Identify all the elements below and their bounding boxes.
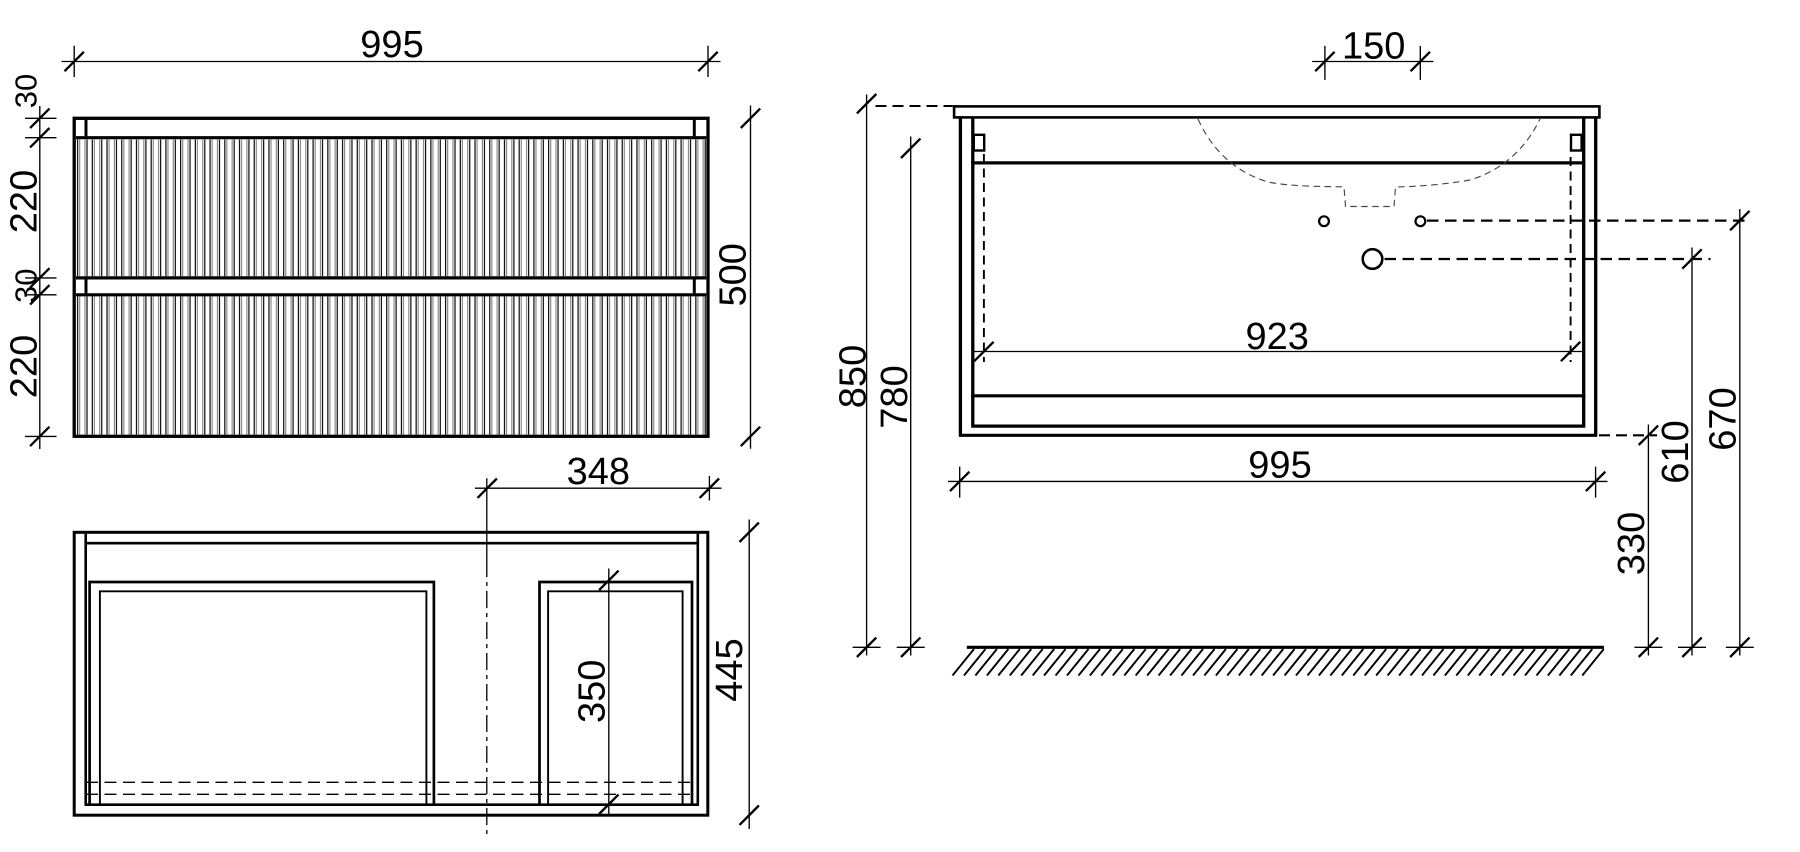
svg-text:995: 995 bbox=[1248, 445, 1311, 487]
svg-text:923: 923 bbox=[1245, 316, 1308, 358]
svg-text:500: 500 bbox=[713, 243, 755, 306]
svg-text:220: 220 bbox=[4, 170, 46, 233]
svg-text:995: 995 bbox=[360, 24, 423, 66]
svg-text:30: 30 bbox=[9, 269, 44, 303]
svg-text:350: 350 bbox=[572, 660, 614, 723]
svg-text:445: 445 bbox=[709, 638, 751, 701]
svg-text:348: 348 bbox=[567, 451, 630, 493]
svg-text:610: 610 bbox=[1655, 420, 1697, 483]
svg-text:850: 850 bbox=[833, 345, 875, 408]
svg-text:220: 220 bbox=[4, 335, 46, 398]
svg-text:330: 330 bbox=[1611, 512, 1653, 575]
svg-text:670: 670 bbox=[1703, 387, 1745, 450]
svg-text:150: 150 bbox=[1342, 26, 1405, 68]
svg-text:30: 30 bbox=[9, 74, 44, 108]
svg-text:780: 780 bbox=[874, 365, 916, 428]
